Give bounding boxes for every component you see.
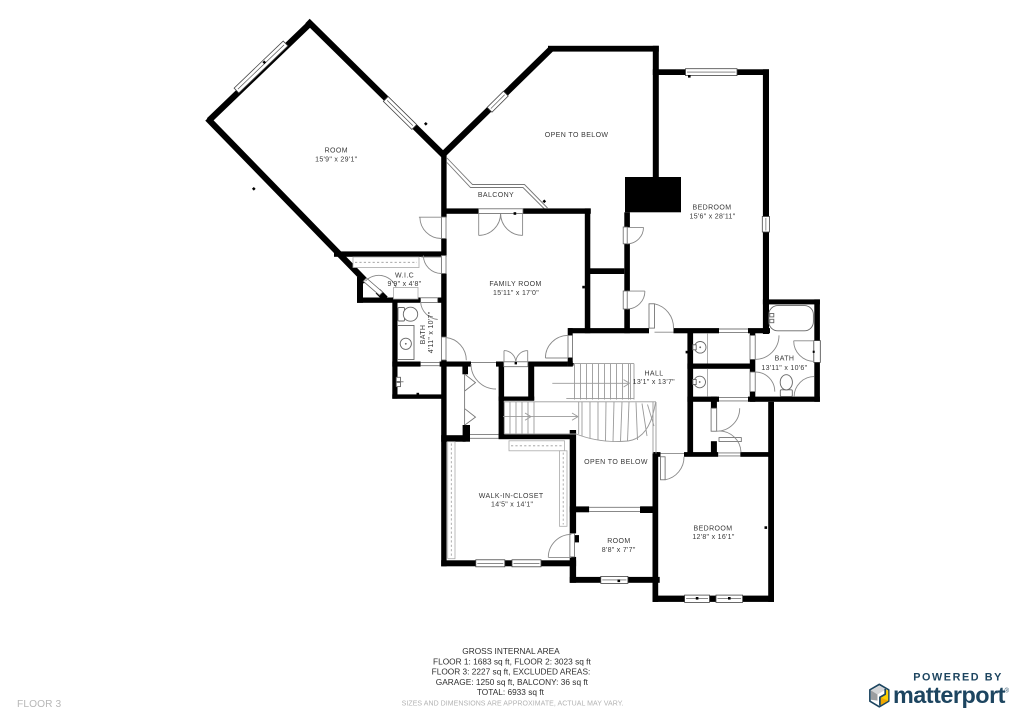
svg-text:BEDROOM: BEDROOM <box>694 526 733 533</box>
svg-text:BATH: BATH <box>420 325 427 345</box>
svg-text:8'8" x 7'7": 8'8" x 7'7" <box>602 547 636 554</box>
svg-text:matterport: matterport <box>893 682 1006 708</box>
svg-text:ROOM: ROOM <box>325 147 348 154</box>
svg-text:W.I.C: W.I.C <box>395 272 414 279</box>
svg-text:FLOOR 1: 1683 sq ft, FLOOR 2:: FLOOR 1: 1683 sq ft, FLOOR 2: 3023 sq ft <box>433 656 591 666</box>
svg-text:BATH: BATH <box>775 355 795 362</box>
svg-text:4'11" x 10'7": 4'11" x 10'7" <box>428 311 435 353</box>
svg-text:®: ® <box>1005 688 1010 695</box>
svg-text:OPEN TO BELOW: OPEN TO BELOW <box>584 459 648 466</box>
svg-text:14'5" x 14'1": 14'5" x 14'1" <box>491 502 534 509</box>
svg-text:HALL: HALL <box>644 371 663 378</box>
svg-text:GROSS INTERNAL AREA: GROSS INTERNAL AREA <box>462 646 560 656</box>
svg-text:WALK-IN-CLOSET: WALK-IN-CLOSET <box>479 493 544 500</box>
svg-text:15'9" x 29'1": 15'9" x 29'1" <box>315 157 358 164</box>
svg-text:GARAGE: 1250 sq ft, BALCONY: 3: GARAGE: 1250 sq ft, BALCONY: 36 sq ft <box>436 677 589 687</box>
svg-text:FAMILY ROOM: FAMILY ROOM <box>489 281 541 288</box>
svg-text:12'8" x 16'1": 12'8" x 16'1" <box>692 534 735 541</box>
svg-text:FLOOR 3: 2227 sq ft, EXCLUDED: FLOOR 3: 2227 sq ft, EXCLUDED AREAS: <box>432 667 591 677</box>
svg-text:SIZES AND DIMENSIONS ARE APPRO: SIZES AND DIMENSIONS ARE APPROXIMATE, AC… <box>402 701 624 708</box>
svg-text:15'11" x 17'0": 15'11" x 17'0" <box>493 290 539 297</box>
svg-text:TOTAL: 6933 sq ft: TOTAL: 6933 sq ft <box>477 687 545 697</box>
svg-text:FLOOR 3: FLOOR 3 <box>17 699 62 710</box>
svg-text:OPEN TO BELOW: OPEN TO BELOW <box>545 132 609 139</box>
svg-text:15'6" x 28'11": 15'6" x 28'11" <box>690 213 736 220</box>
svg-text:ROOM: ROOM <box>607 538 630 545</box>
svg-text:BALCONY: BALCONY <box>478 192 514 199</box>
svg-text:13'11" x 10'6": 13'11" x 10'6" <box>761 365 807 372</box>
svg-text:9'9" x 4'8": 9'9" x 4'8" <box>388 281 422 288</box>
svg-text:13'1" x 13'7": 13'1" x 13'7" <box>633 379 676 386</box>
svg-text:BEDROOM: BEDROOM <box>693 204 732 211</box>
